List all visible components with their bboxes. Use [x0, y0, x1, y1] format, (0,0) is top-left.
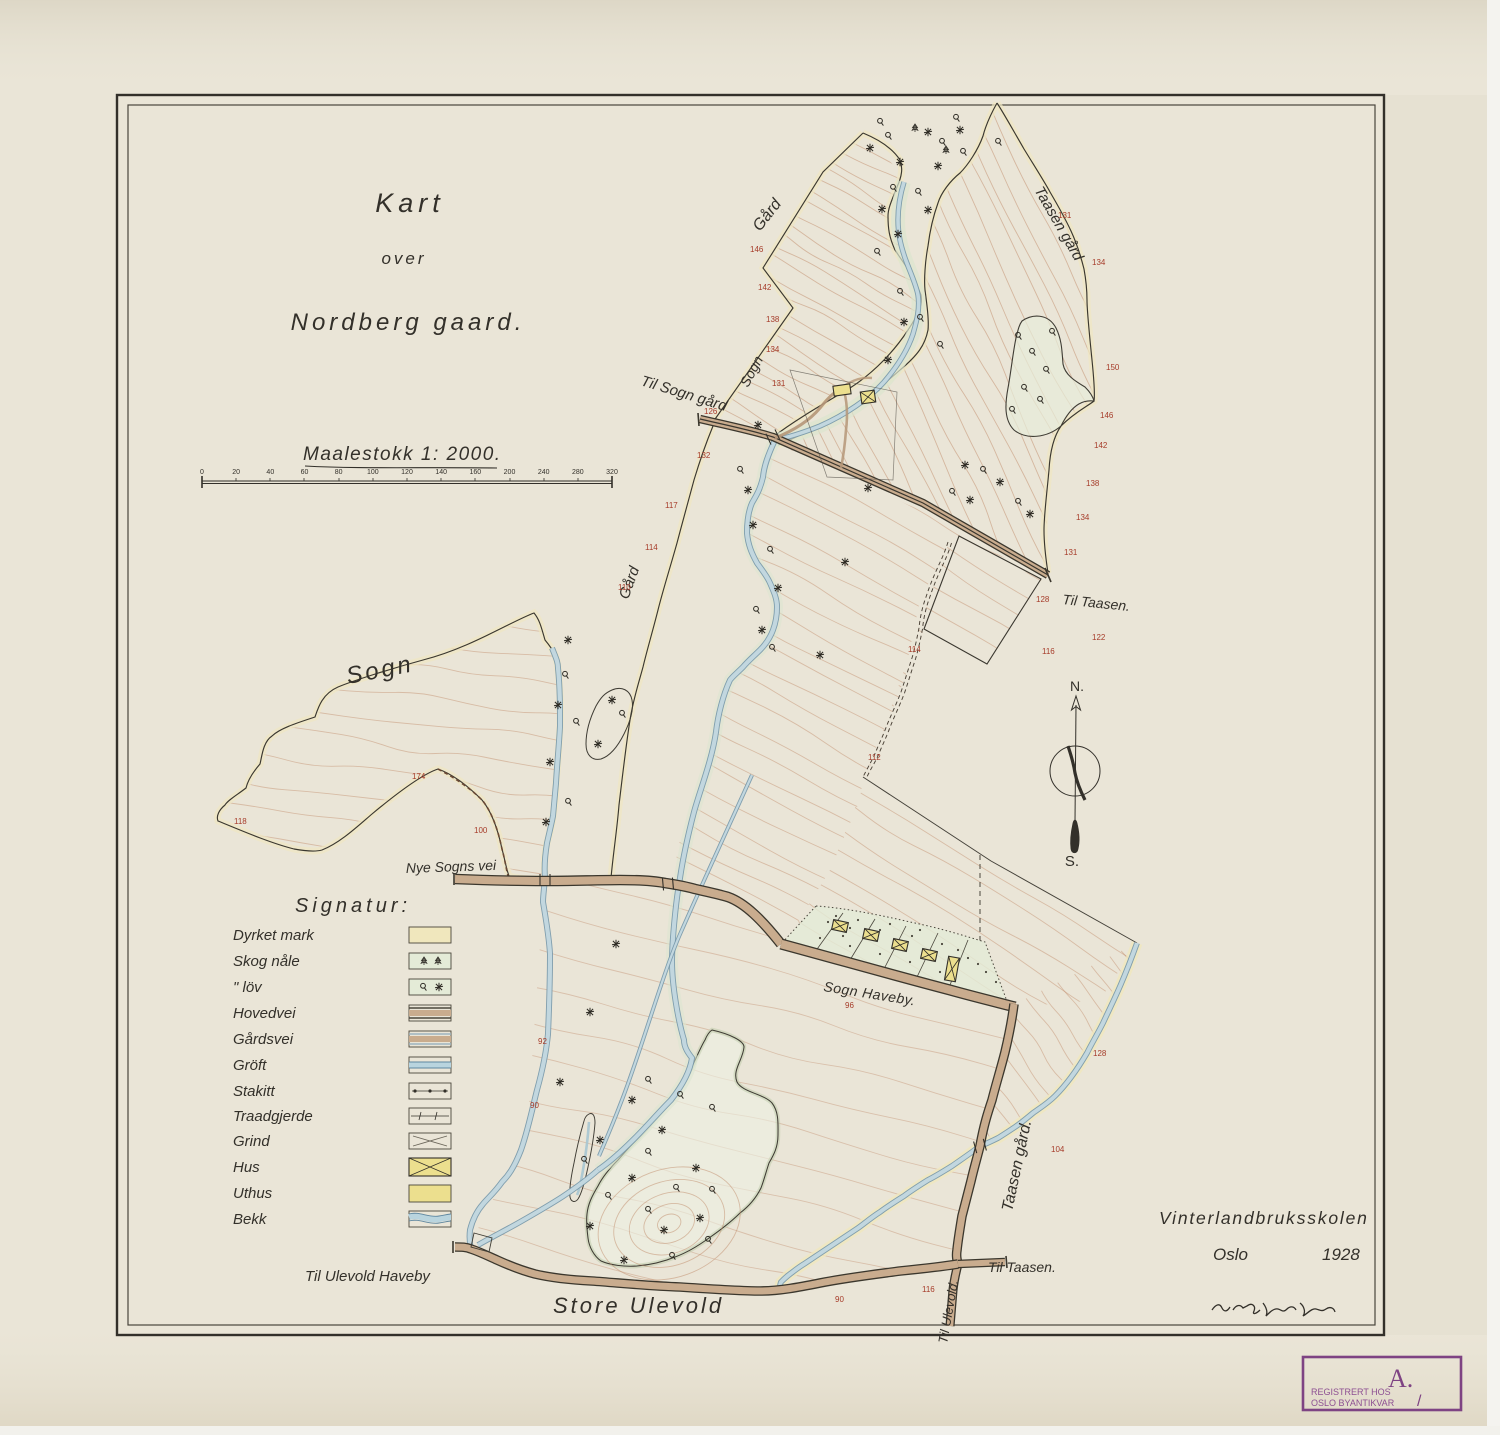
svg-text:Skog nåle: Skog nåle	[233, 953, 300, 970]
svg-text:134: 134	[1092, 258, 1106, 267]
svg-text:160: 160	[469, 469, 481, 476]
svg-text:N.: N.	[1070, 678, 1084, 694]
svg-text:200: 200	[504, 469, 516, 476]
svg-text:96: 96	[845, 1001, 854, 1010]
svg-text:Gröft: Gröft	[233, 1057, 267, 1074]
svg-text:Hovedvei: Hovedvei	[233, 1005, 296, 1022]
svg-text:Grind: Grind	[233, 1133, 270, 1150]
svg-text:0: 0	[200, 469, 204, 476]
svg-text:Traadgjerde: Traadgjerde	[233, 1108, 313, 1125]
svg-text:Nordberg gaard.: Nordberg gaard.	[291, 309, 526, 336]
svg-text:146: 146	[750, 245, 764, 254]
svg-text:117: 117	[665, 501, 678, 510]
svg-text:112: 112	[868, 753, 881, 762]
svg-text:150: 150	[1106, 363, 1120, 372]
svg-text:Vinterlandbruksskolen: Vinterlandbruksskolen	[1159, 1208, 1369, 1228]
svg-text:116: 116	[1042, 647, 1055, 656]
svg-text:Bekk: Bekk	[233, 1211, 268, 1228]
svg-text:116: 116	[922, 1285, 935, 1294]
svg-text:128: 128	[1036, 595, 1050, 604]
svg-text:122: 122	[1092, 633, 1106, 642]
svg-text:140: 140	[435, 469, 447, 476]
svg-text:80: 80	[335, 469, 343, 476]
svg-text:Til Ulevold Haveby: Til Ulevold Haveby	[305, 1268, 431, 1285]
svg-text:Signatur:: Signatur:	[295, 895, 411, 917]
svg-text:Gårdsvei: Gårdsvei	[233, 1031, 294, 1048]
svg-text:Store Ulevold: Store Ulevold	[553, 1293, 724, 1318]
svg-text:S.: S.	[1065, 853, 1079, 870]
svg-text:131: 131	[1058, 211, 1072, 220]
svg-text:100: 100	[474, 826, 488, 835]
svg-text:131: 131	[772, 379, 786, 388]
svg-text:128: 128	[1093, 1049, 1107, 1058]
svg-text:1928: 1928	[1322, 1245, 1360, 1264]
svg-text:Til Taasen.: Til Taasen.	[988, 1259, 1056, 1275]
svg-text:118: 118	[234, 817, 247, 826]
svg-text:Dyrket mark: Dyrket mark	[233, 927, 315, 944]
svg-text:280: 280	[572, 469, 584, 476]
svg-text:138: 138	[766, 315, 780, 324]
svg-text:Oslo: Oslo	[1213, 1245, 1248, 1264]
svg-text:90: 90	[530, 1101, 539, 1110]
svg-text:Hus: Hus	[233, 1159, 260, 1176]
svg-text:114: 114	[908, 645, 921, 654]
svg-text:90: 90	[835, 1295, 844, 1304]
svg-text:OSLO BYANTIKVAR: OSLO BYANTIKVAR	[1311, 1398, 1395, 1408]
svg-text:142: 142	[758, 283, 772, 292]
svg-text:132: 132	[697, 451, 711, 460]
svg-text:174: 174	[412, 772, 426, 781]
svg-text:146: 146	[1100, 411, 1114, 420]
svg-text:Maalestokk 1: 2000.: Maalestokk 1: 2000.	[303, 444, 502, 465]
svg-text:142: 142	[1094, 441, 1108, 450]
svg-text:126: 126	[704, 407, 718, 416]
svg-text:134: 134	[1076, 513, 1090, 522]
svg-text:A.: A.	[1388, 1364, 1413, 1393]
svg-text:134: 134	[766, 345, 780, 354]
svg-text:Stakitt: Stakitt	[233, 1083, 276, 1100]
svg-text:over: over	[381, 249, 426, 268]
svg-text:REGISTRERT HOS: REGISTRERT HOS	[1311, 1387, 1391, 1397]
svg-text:100: 100	[367, 469, 379, 476]
svg-text:/: /	[1417, 1393, 1422, 1410]
svg-text:92: 92	[538, 1037, 547, 1046]
svg-text:240: 240	[538, 469, 550, 476]
svg-text:60: 60	[301, 469, 309, 476]
svg-text:Kart: Kart	[375, 188, 445, 218]
svg-text:320: 320	[606, 469, 618, 476]
svg-text:" löv: " löv	[233, 979, 263, 996]
svg-text:120: 120	[401, 469, 413, 476]
svg-text:40: 40	[266, 469, 274, 476]
svg-text:104: 104	[1051, 1145, 1065, 1154]
svg-text:138: 138	[1086, 479, 1100, 488]
svg-text:114: 114	[645, 543, 658, 552]
svg-text:110: 110	[618, 583, 631, 592]
svg-text:Nye Sogns vei: Nye Sogns vei	[406, 857, 498, 876]
svg-text:20: 20	[232, 469, 240, 476]
svg-text:131: 131	[1064, 548, 1078, 557]
svg-text:Uthus: Uthus	[233, 1185, 273, 1202]
